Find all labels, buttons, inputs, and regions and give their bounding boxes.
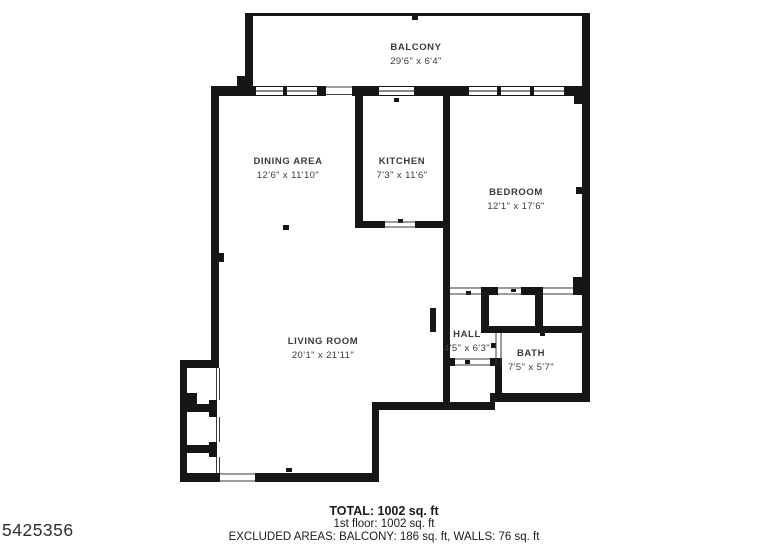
room-dims: 7'3" x 11'6": [377, 169, 428, 183]
bath-label: BATH 7'5" x 5'7": [508, 347, 554, 375]
bedroom-label: BEDROOM 12'1" x 17'6": [487, 186, 544, 214]
total-area-text: TOTAL: 1002 sq. ft: [0, 504, 768, 518]
listing-id: 5425356: [2, 520, 74, 541]
kitchen-label: KITCHEN 7'3" x 11'6": [377, 155, 428, 183]
room-name: LIVING ROOM: [288, 336, 358, 347]
room-dims: 12'6" x 11'10": [253, 169, 322, 183]
closet-divider-wall: [535, 295, 543, 328]
bottom-step-wall: [372, 402, 379, 482]
closet-left-wall: [481, 295, 489, 328]
bath-left-wall: [495, 366, 502, 398]
floor-plan-page: BALCONY 29'6" x 6'4" DINING AREA 12'6" x…: [0, 0, 768, 556]
mid-vertical-wall: [443, 96, 450, 402]
walls: [180, 13, 590, 482]
opening-lines: [217, 87, 574, 481]
room-name: HALL: [453, 329, 481, 340]
hall-label: HALL 4'5" x 6'3": [444, 328, 490, 356]
living-room-label: LIVING ROOM 20'1" x 21'11": [288, 335, 358, 363]
right-wall: [582, 13, 590, 402]
bedroom-corner-block: [573, 277, 590, 295]
area-summary: TOTAL: 1002 sq. ft 1st floor: 1002 sq. f…: [0, 504, 768, 544]
room-dims: 12'1" x 17'6": [487, 200, 544, 214]
outer-left-lower-wall: [180, 360, 187, 482]
right-wall-bump: [576, 187, 582, 194]
bottom-wall-mid: [255, 473, 378, 482]
bottom-band: [372, 402, 495, 410]
bottom-wall-left: [180, 473, 220, 482]
left-wall-pilaster: [219, 253, 224, 262]
windows: [255, 86, 565, 96]
room-name: DINING AREA: [253, 156, 322, 167]
excluded-areas-text: EXCLUDED AREAS: BALCONY: 186 sq. ft, WAL…: [0, 531, 768, 544]
room-dims: 29'6" x 6'4": [390, 55, 442, 69]
room-name: BEDROOM: [489, 187, 543, 198]
dining-area-label: DINING AREA 12'6" x 11'10": [253, 155, 322, 183]
living-pilaster: [430, 308, 436, 332]
room-name: BALCONY: [390, 42, 441, 53]
floor-plan-drawing: [0, 0, 768, 556]
room-name: KITCHEN: [379, 156, 425, 167]
kitchen-left-wall: [355, 96, 363, 228]
room-dims: 4'5" x 6'3": [444, 342, 490, 356]
room-name: BATH: [517, 348, 545, 359]
balcony-label: BALCONY 29'6" x 6'4": [390, 41, 442, 69]
room-dims: 7'5" x 5'7": [508, 361, 554, 375]
bath-bottom-wall: [490, 393, 590, 402]
left-wall: [211, 86, 219, 368]
floor-area-text: 1st floor: 1002 sq. ft: [0, 518, 768, 531]
room-dims: 20'1" x 21'11": [288, 349, 358, 363]
closet-bottom-wall: [481, 326, 590, 333]
